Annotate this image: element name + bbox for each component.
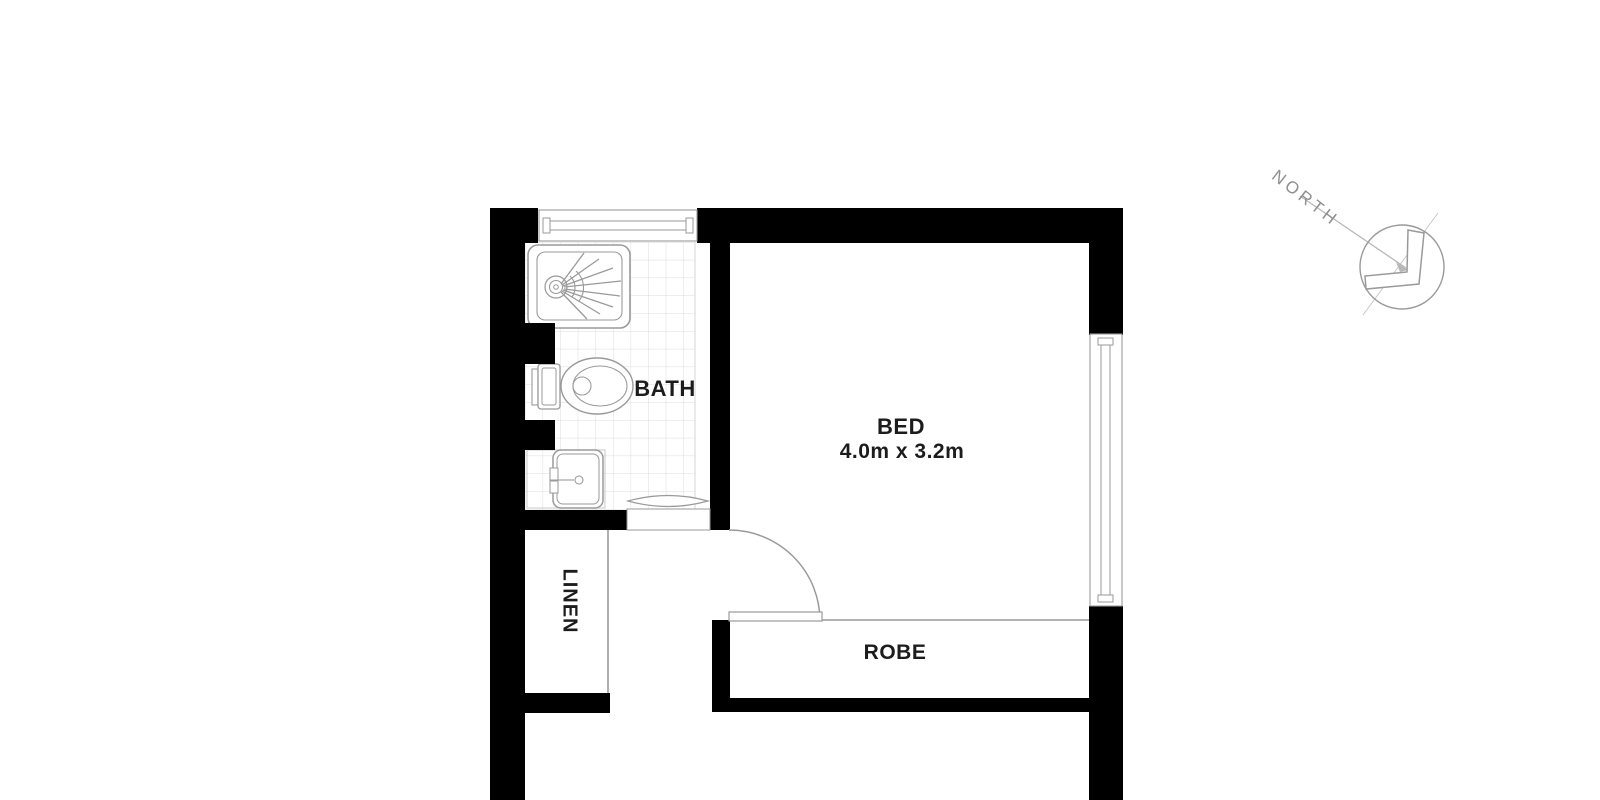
wall-top-main <box>697 208 1123 243</box>
floorplan-canvas: BATH BED 4.0m x 3.2m LINEN ROBE NORTH <box>0 0 1600 800</box>
bath-window <box>539 210 697 241</box>
bath-label: BATH <box>634 376 695 402</box>
shower <box>528 245 630 328</box>
bath-sliding-door <box>627 496 710 531</box>
floorplan-drawing <box>0 0 1600 800</box>
bed-dimensions: 4.0m x 3.2m <box>840 440 965 464</box>
wall-shower-nib <box>522 323 555 364</box>
linen-label: LINEN <box>558 569 581 634</box>
robe-label: ROBE <box>864 641 927 665</box>
toilet <box>532 358 633 414</box>
wall-top-corner <box>490 208 538 243</box>
wall-right-upper <box>1089 208 1123 335</box>
wall-right-lower <box>1089 606 1123 800</box>
wall-vanity-nib <box>522 420 555 450</box>
door-leaf <box>729 612 822 621</box>
door-swing-arc <box>729 530 820 621</box>
wall-bath-bed-divider <box>710 242 730 530</box>
wall-bath-bottom <box>490 510 627 530</box>
wall-door-jamb <box>712 620 730 700</box>
wall-robe-bottom <box>712 698 1089 712</box>
bed-label: BED <box>877 414 925 440</box>
bed-door <box>729 530 822 621</box>
bed-window <box>1090 334 1122 606</box>
wall-linen-bottom <box>490 693 610 713</box>
